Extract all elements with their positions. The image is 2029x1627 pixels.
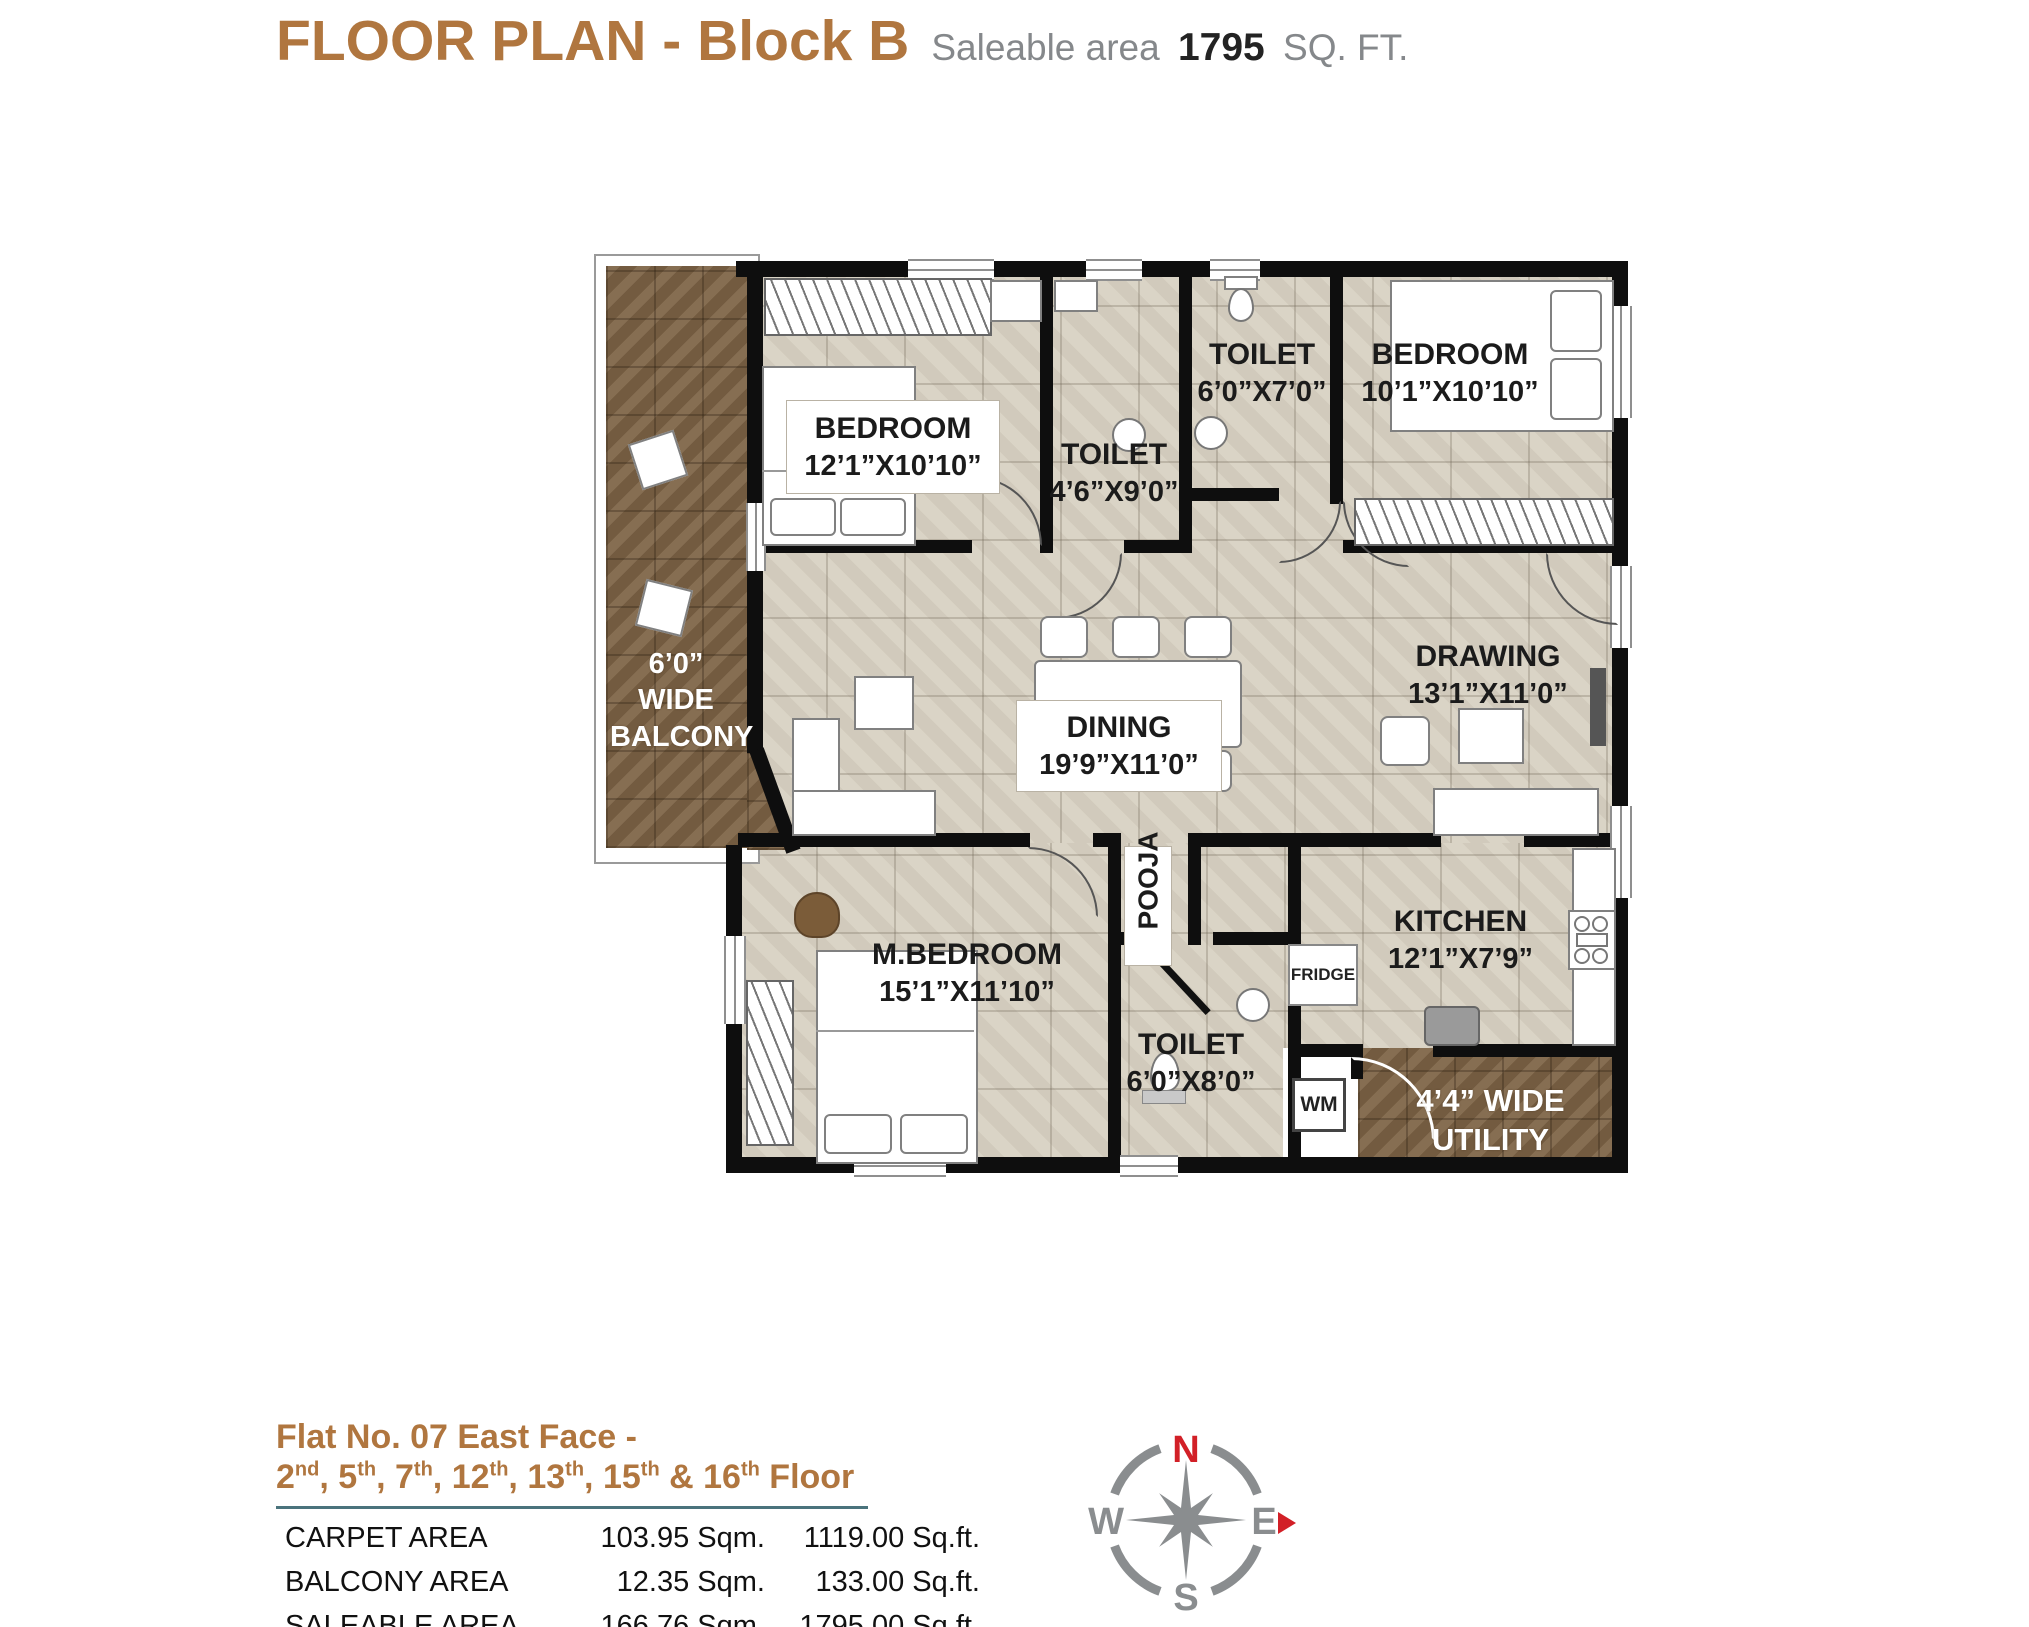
tv-icon: [1590, 668, 1606, 746]
side-table-icon: [854, 676, 914, 730]
room-label-dining: DINING 19’9”X11’0”: [1016, 700, 1222, 792]
room-label-kitchen: KITCHEN 12’1”X7’9”: [1358, 903, 1563, 977]
fridge-box: FRIDGE: [1288, 944, 1358, 1006]
room-label-pooja: POOJA: [1124, 846, 1172, 966]
wall-segment: [1188, 833, 1201, 945]
compass-w: W: [1088, 1501, 1124, 1543]
area-sqft: 1119.00 Sq.ft.: [765, 1522, 980, 1555]
compass-rose-icon: N E S W: [1078, 1428, 1308, 1627]
area-table: CARPET AREA 103.95 Sqm. 1119.00 Sq.ft. B…: [285, 1516, 985, 1627]
coffee-table-icon: [1458, 708, 1524, 764]
room-name: DRAWING: [1388, 638, 1588, 676]
room-dims: 10’1”X10’10”: [1350, 374, 1550, 410]
pillow-icon: [900, 1114, 968, 1154]
wardrobe-icon: [746, 980, 794, 1146]
pillow-icon: [840, 498, 906, 536]
burner-icon: [1574, 916, 1590, 932]
room-name: BEDROOM: [787, 410, 999, 448]
compass-e: E: [1251, 1501, 1276, 1543]
area-sqm: 12.35 Sqm.: [575, 1566, 765, 1599]
balcony-label: 6’0” WIDE BALCONY: [610, 646, 742, 755]
hob-tray: [1576, 933, 1608, 947]
table-row: CARPET AREA 103.95 Sqm. 1119.00 Sq.ft.: [285, 1516, 985, 1560]
burner-icon: [1592, 948, 1608, 964]
area-sqft: 133.00 Sq.ft.: [765, 1566, 980, 1599]
balcony-line: WIDE: [610, 682, 742, 718]
room-name: TOILET: [1116, 1026, 1266, 1064]
utility-line: UTILITY: [1383, 1121, 1598, 1160]
utility-line: 4’4” WIDE: [1383, 1082, 1598, 1121]
pillow-icon: [824, 1114, 892, 1154]
room-dims: 6’0”X7’0”: [1186, 374, 1338, 410]
wm-label: WM: [1300, 1093, 1337, 1117]
room-name: DINING: [1017, 709, 1221, 747]
armchair-icon: [1380, 716, 1430, 766]
area-label: CARPET AREA: [285, 1522, 575, 1555]
utility-label: 4’4” WIDE UTILITY: [1383, 1082, 1598, 1160]
sofa-icon: [1433, 788, 1599, 836]
room-dims: 12’1”X7’9”: [1358, 941, 1563, 977]
wall-segment: [1201, 833, 1441, 847]
pillow-icon: [1550, 358, 1602, 420]
wardrobe-icon: [1354, 498, 1614, 546]
burner-icon: [1574, 948, 1590, 964]
wall-segment: [1179, 488, 1279, 501]
dining-chair-icon: [1112, 616, 1160, 658]
pillow-icon: [1550, 290, 1602, 352]
wall-segment: [1301, 1044, 1351, 1057]
washbasin-icon: [1236, 988, 1270, 1022]
compass-star-icon: [1126, 1460, 1246, 1580]
area-sqm: 166.76 Sqm.: [575, 1610, 765, 1627]
sofa-icon: [792, 790, 936, 836]
saleable-suffix: SQ. FT.: [1283, 27, 1408, 68]
room-label-bedroom2: BEDROOM 10’1”X10’10”: [1350, 336, 1550, 410]
window-marker: [1120, 1155, 1178, 1177]
wardrobe-icon: [764, 278, 992, 336]
sofa-icon: [792, 718, 840, 792]
compass-s: S: [1173, 1577, 1198, 1619]
area-label: SALEABLE AREA: [285, 1610, 575, 1627]
room-name: BEDROOM: [1350, 336, 1550, 374]
room-name: KITCHEN: [1358, 903, 1563, 941]
room-label-toilet-mid: TOILET 4’6”X9’0”: [1040, 436, 1188, 510]
dining-chair-icon: [1040, 616, 1088, 658]
balcony-floor: [606, 266, 747, 848]
room-name: TOILET: [1186, 336, 1338, 374]
room-name: TOILET: [1040, 436, 1188, 474]
area-label: BALCONY AREA: [285, 1566, 575, 1599]
balcony-line: 6’0”: [610, 646, 742, 682]
east-direction-arrow-icon: [1278, 1512, 1296, 1534]
table-row: BALCONY AREA 12.35 Sqm. 133.00 Sq.ft.: [285, 1560, 985, 1604]
page-header: FLOOR PLAN - Block B Saleable area 1795 …: [276, 8, 1408, 74]
room-name: POOJA: [1131, 883, 1166, 929]
room-dims: 13’1”X11’0”: [1388, 676, 1588, 712]
wc-icon: [1228, 288, 1254, 322]
burner-icon: [1592, 916, 1608, 932]
room-dims: 6’0”X8’0”: [1116, 1064, 1266, 1100]
floor-plan: FRIDGE WM BEDROOM 12’1”X10’10” TOILET 4’…: [588, 248, 1633, 1188]
floor-plan-page: FLOOR PLAN - Block B Saleable area 1795 …: [0, 0, 2029, 1627]
area-sqft: 1795.00 Sq.ft.: [765, 1610, 980, 1627]
chair-icon: [794, 892, 840, 938]
flat-number-title: Flat No. 07 East Face -: [276, 1418, 637, 1457]
balcony-line: BALCONY: [610, 719, 742, 755]
fridge-label: FRIDGE: [1291, 965, 1355, 985]
saleable-area-text: Saleable area 1795 SQ. FT.: [931, 26, 1408, 70]
room-label-toilet-bottom: TOILET 6’0”X8’0”: [1116, 1026, 1266, 1100]
room-dims: 4’6”X9’0”: [1040, 474, 1188, 510]
room-dims: 15’1”X11’10”: [860, 974, 1074, 1010]
room-name: M.BEDROOM: [860, 936, 1074, 974]
washbasin-icon: [1054, 280, 1098, 312]
page-title: FLOOR PLAN - Block B: [276, 8, 909, 74]
room-label-toilet-top: TOILET 6’0”X7’0”: [1186, 336, 1338, 410]
dining-chair-icon: [1184, 616, 1232, 658]
room-label-bedroom1: BEDROOM 12’1”X10’10”: [786, 400, 1000, 494]
dresser-icon: [990, 280, 1042, 322]
window-marker: [1086, 259, 1142, 281]
divider-line: [276, 1506, 868, 1509]
area-sqm: 103.95 Sqm.: [575, 1522, 765, 1555]
room-dims: 12’1”X10’10”: [787, 448, 999, 484]
washing-machine-box: WM: [1292, 1078, 1346, 1132]
room-label-drawing: DRAWING 13’1”X11’0”: [1388, 638, 1588, 712]
hob-icon: [1568, 910, 1616, 970]
wall-segment: [1108, 833, 1121, 1173]
pillow-icon: [770, 498, 836, 536]
compass-n: N: [1172, 1429, 1199, 1471]
saleable-value: 1795: [1178, 26, 1265, 69]
bed-blanket-line: [816, 1030, 974, 1032]
room-label-mbedroom: M.BEDROOM 15’1”X11’10”: [860, 936, 1074, 1010]
sink-icon: [1424, 1006, 1480, 1046]
room-dims: 19’9”X11’0”: [1017, 747, 1221, 783]
saleable-prefix: Saleable area: [931, 27, 1159, 68]
washbasin-icon: [1194, 416, 1228, 450]
table-row: SALEABLE AREA 166.76 Sqm. 1795.00 Sq.ft.: [285, 1604, 985, 1627]
floors-line: 2nd, 5th, 7th, 12th, 13th, 15th & 16th F…: [276, 1458, 854, 1497]
window-marker: [724, 936, 746, 1024]
